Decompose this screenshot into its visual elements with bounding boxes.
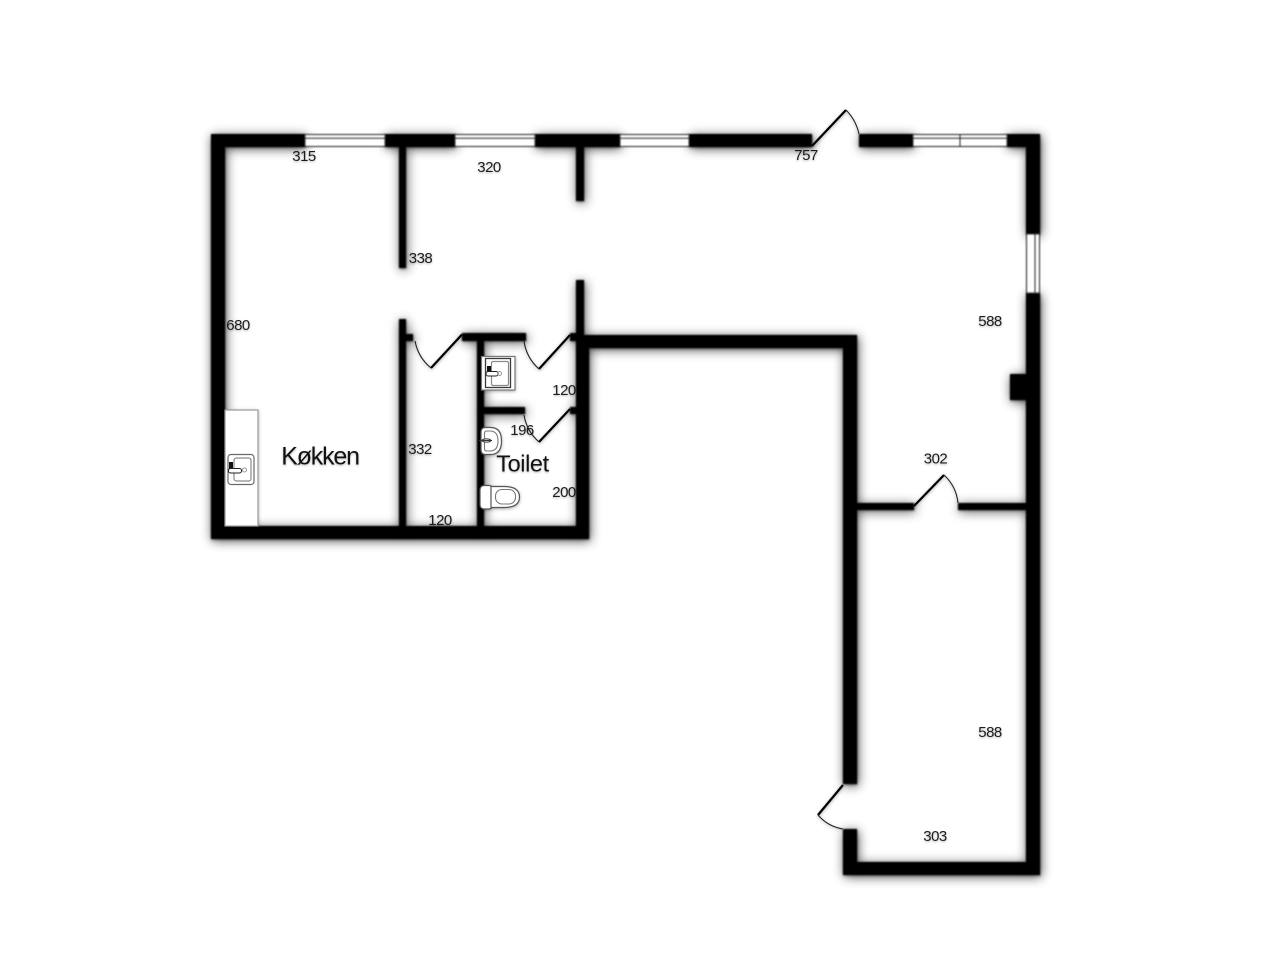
svg-text:338: 338: [409, 250, 433, 267]
svg-text:303: 303: [923, 828, 947, 845]
svg-text:332: 332: [408, 441, 432, 458]
svg-text:196: 196: [510, 422, 534, 439]
svg-text:200: 200: [552, 484, 576, 501]
svg-text:Køkken: Køkken: [281, 443, 359, 471]
svg-text:302: 302: [924, 451, 948, 468]
svg-text:120: 120: [552, 382, 576, 399]
svg-text:588: 588: [978, 724, 1002, 741]
svg-text:120: 120: [428, 512, 452, 529]
svg-text:320: 320: [477, 159, 501, 176]
svg-text:680: 680: [226, 317, 250, 334]
svg-text:315: 315: [292, 148, 316, 165]
svg-text:757: 757: [794, 147, 818, 164]
svg-text:Toilet: Toilet: [496, 451, 549, 477]
svg-text:588: 588: [978, 313, 1002, 330]
